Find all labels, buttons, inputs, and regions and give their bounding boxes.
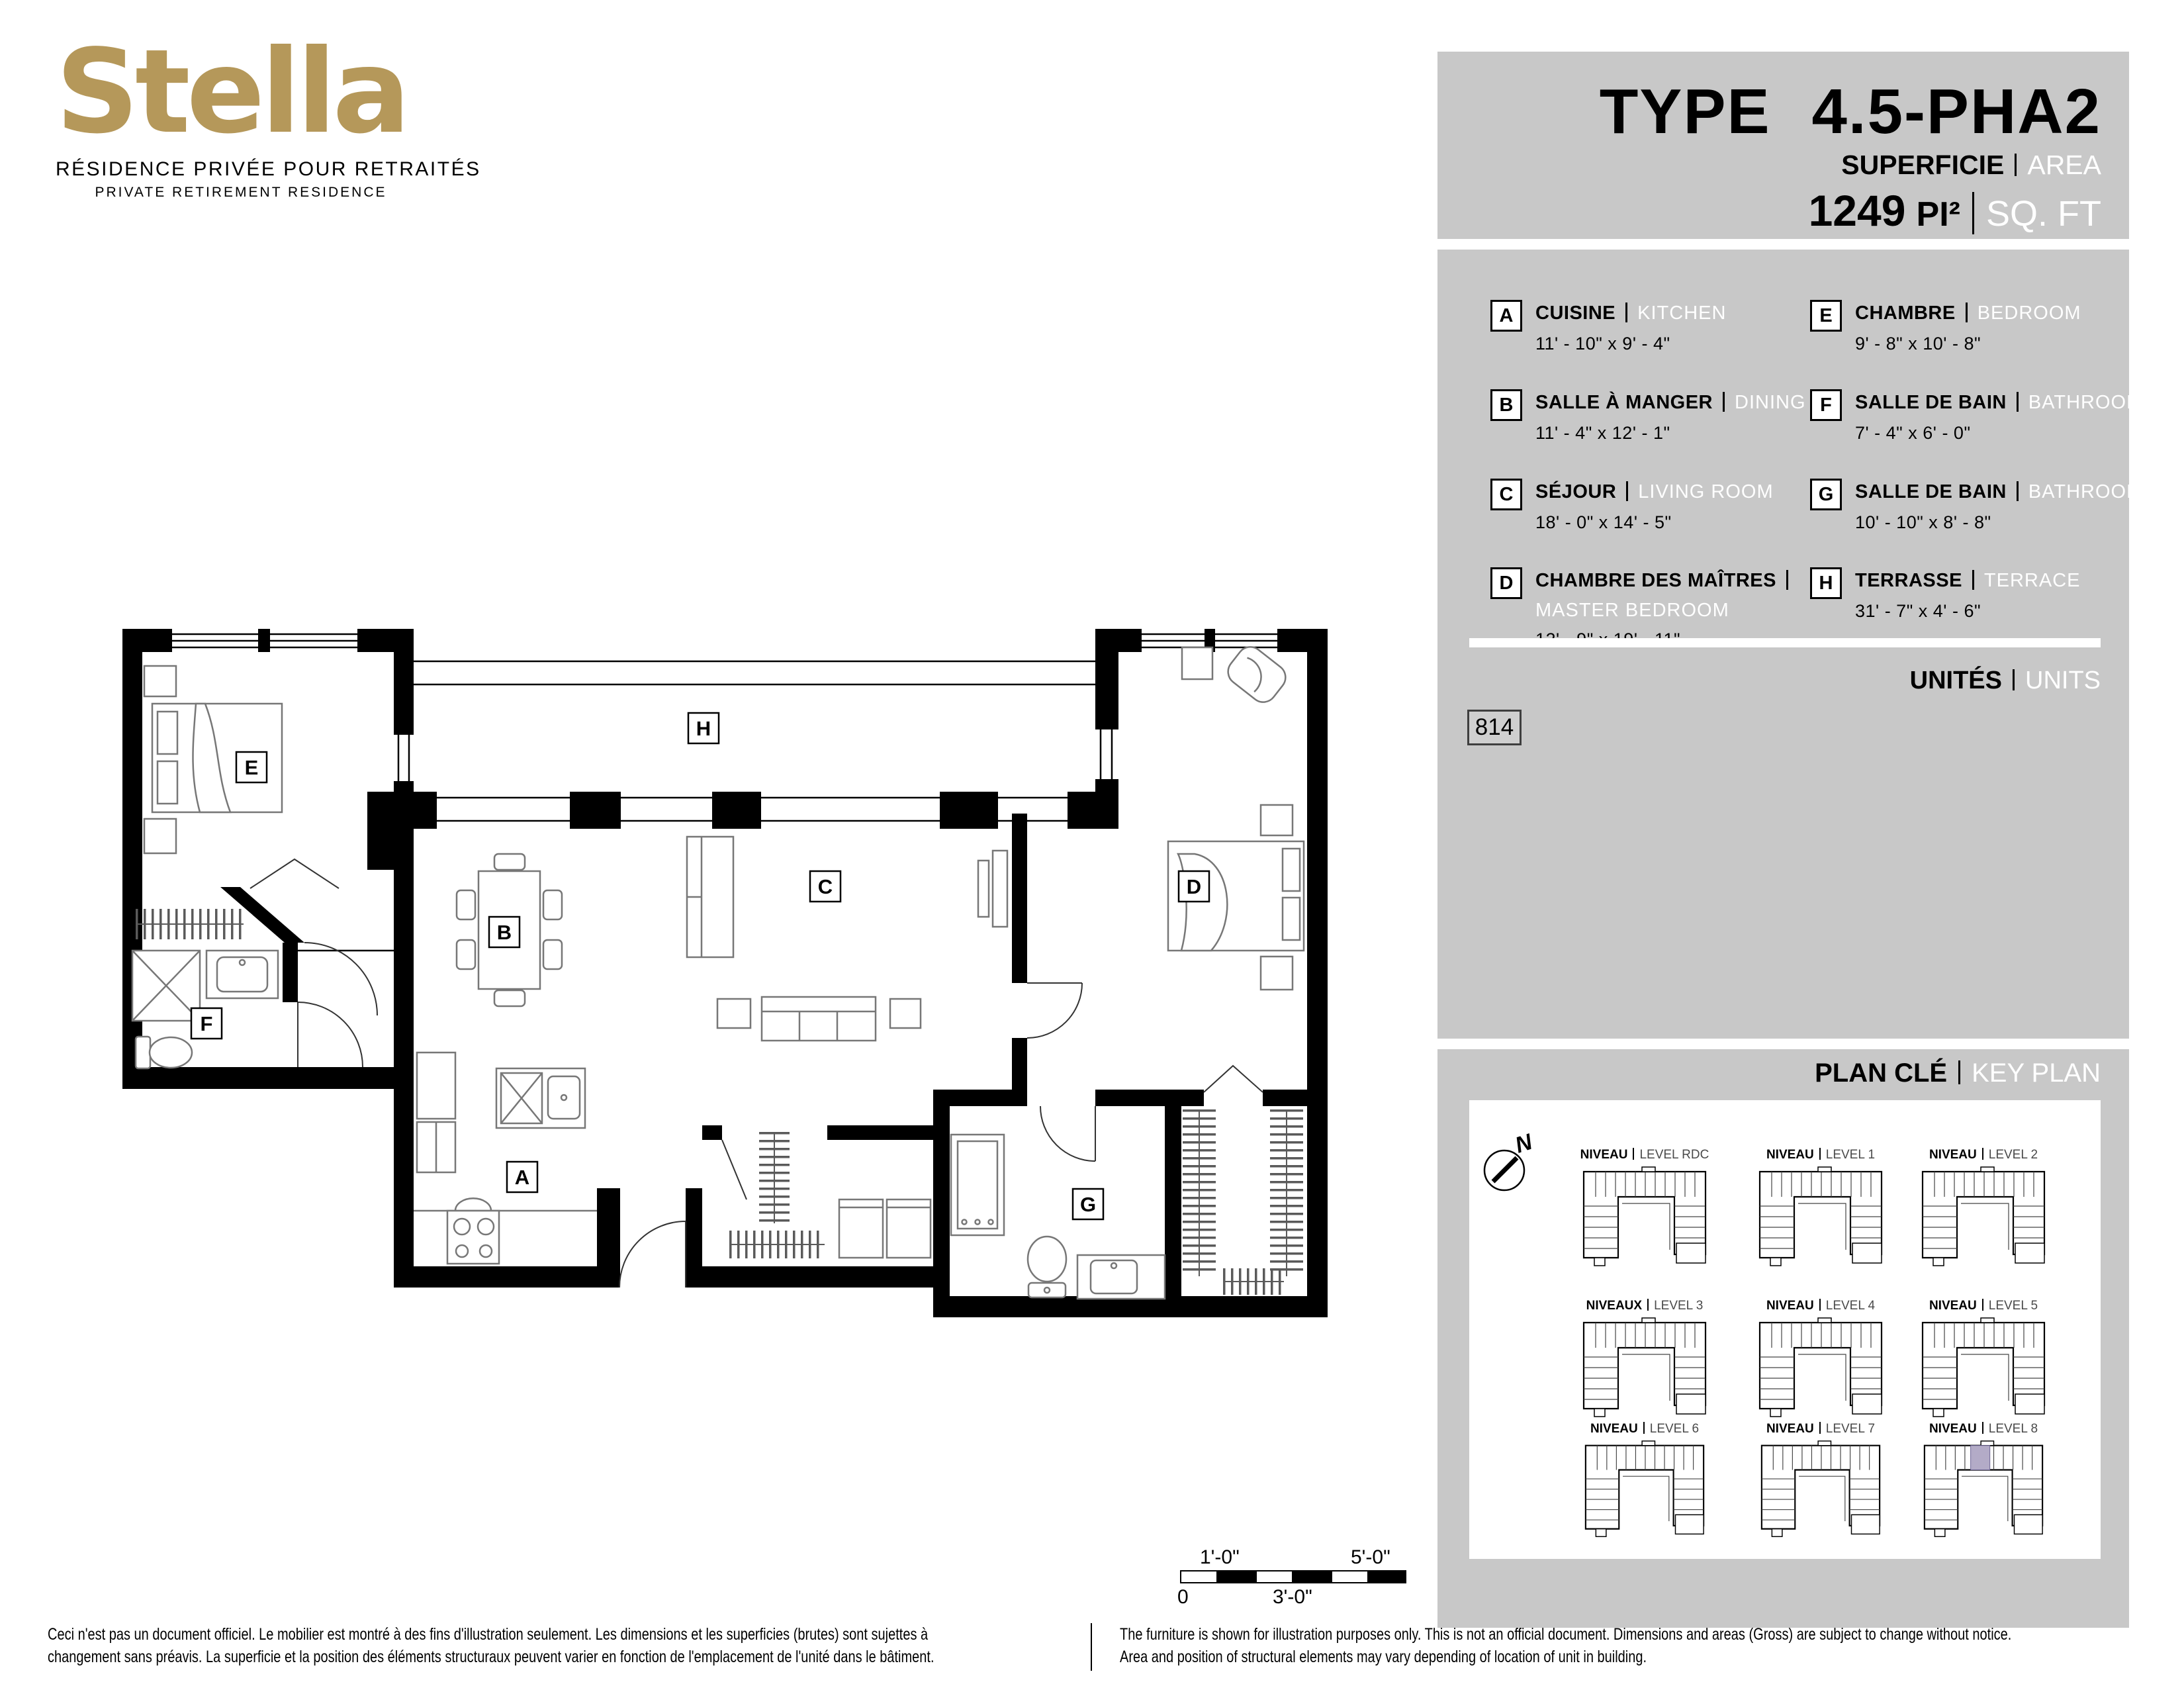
area-label-line: SUPERFICIEAREA: [1841, 150, 2101, 181]
logo-tagline-fr: RÉSIDENCE PRIVÉE POUR RETRAITÉS: [56, 158, 426, 181]
room-label-B: B: [489, 917, 520, 947]
room-legend-panel: A CUISINEKITCHEN 11' - 10" x 9' - 4" B S…: [1437, 250, 2129, 1039]
scale-label-5ft: 5'-0": [1351, 1546, 1390, 1569]
svg-text:A: A: [515, 1166, 529, 1189]
scale-seg: [1218, 1570, 1255, 1583]
scale-bar: 1'-0" 5'-0" 0 3'-0": [1180, 1546, 1406, 1606]
area-value-line: 1249 PI²SQ. FT: [1809, 185, 2101, 240]
keyplan-level-5: NIVEAULEVEL 5: [1878, 1299, 2089, 1425]
room-label-D: D: [1179, 871, 1209, 902]
legend-letter-F: F: [1810, 389, 1842, 421]
type-header-panel: TYPE4.5-PHA2 SUPERFICIEAREA 1249 PI²SQ. …: [1437, 52, 2129, 239]
legend-letter-G: G: [1810, 479, 1842, 510]
area-unit-fr: PI²: [1917, 195, 1960, 234]
room-label-A: A: [507, 1162, 537, 1192]
legend-letter-B: B: [1490, 389, 1522, 421]
area-value: 1249: [1809, 186, 1906, 235]
disclaimer-fr: Ceci n'est pas un document officiel. Le …: [48, 1623, 934, 1668]
separator-bar: [2015, 154, 2017, 176]
area-label: AREA: [2027, 150, 2101, 180]
logo-tagline-en: PRIVATE RETIREMENT RESIDENCE: [56, 185, 426, 201]
separator-bar: [1972, 192, 1974, 234]
stella-logo: Stella RÉSIDENCE PRIVÉE POUR RETRAITÉS P…: [56, 36, 426, 201]
svg-text:E: E: [245, 756, 259, 779]
type-value: 4.5-PHA2: [1812, 76, 2102, 147]
room-label-F: F: [191, 1008, 222, 1039]
keyplan-level-2: NIVEAULEVEL 2: [1878, 1148, 2089, 1274]
scale-label-0: 0: [1177, 1586, 1189, 1609]
disclaimer-en: The furniture is shown for illustration …: [1120, 1623, 2011, 1668]
type-label: TYPE: [1600, 76, 1771, 147]
highlighted-unit-814: [1971, 1446, 1990, 1470]
scale-label-1ft: 1'-0": [1200, 1546, 1240, 1569]
svg-text:D: D: [1187, 875, 1201, 898]
scale-seg: [1293, 1570, 1331, 1583]
room-label-C: C: [810, 871, 841, 902]
scale-seg: [1255, 1570, 1293, 1583]
scale-label-3ft: 3'-0": [1273, 1586, 1312, 1609]
legend-letter-E: E: [1810, 300, 1842, 332]
keyplan-panel: PLAN CLÉKEY PLAN N: [1437, 1049, 2129, 1628]
legend-letter-H: H: [1810, 567, 1842, 599]
room-label-G: G: [1073, 1189, 1103, 1219]
svg-text:H: H: [696, 717, 711, 740]
superficie-label: SUPERFICIE: [1841, 150, 2004, 180]
keyplan-level-8-highlighted: NIVEAULEVEL 8: [1878, 1422, 2089, 1545]
scale-seg: [1369, 1570, 1406, 1583]
unit-floorplan-drawing: A B C D E F G H: [0, 583, 1423, 1410]
unit-type-title: TYPE4.5-PHA2: [1600, 75, 2101, 148]
units-heading: UNITÉSUNITS: [1910, 667, 2101, 695]
legend-letter-C: C: [1490, 479, 1522, 510]
legend-letter-D: D: [1490, 567, 1522, 599]
area-unit-en: SQ. FT: [1986, 194, 2101, 234]
white-divider: [1469, 638, 2101, 647]
svg-text:C: C: [818, 875, 833, 898]
legend-letter-A: A: [1490, 300, 1522, 332]
svg-text:G: G: [1080, 1193, 1096, 1216]
logo-wordmark: Stella: [56, 36, 426, 149]
room-label-H: H: [688, 713, 719, 743]
unit-number-badge: 814: [1467, 710, 1522, 745]
svg-text:F: F: [201, 1012, 213, 1035]
keyplan-title: PLAN CLÉKEY PLAN: [1815, 1058, 2101, 1088]
disclaimer-divider: [1091, 1623, 1092, 1671]
room-label-E: E: [236, 752, 267, 782]
keyplan-canvas: N: [1469, 1100, 2101, 1559]
scale-seg: [1331, 1570, 1369, 1583]
svg-text:B: B: [497, 921, 512, 944]
floorplan-sheet: Stella RÉSIDENCE PRIVÉE POUR RETRAITÉS P…: [0, 0, 2184, 1688]
scale-seg: [1180, 1570, 1218, 1583]
